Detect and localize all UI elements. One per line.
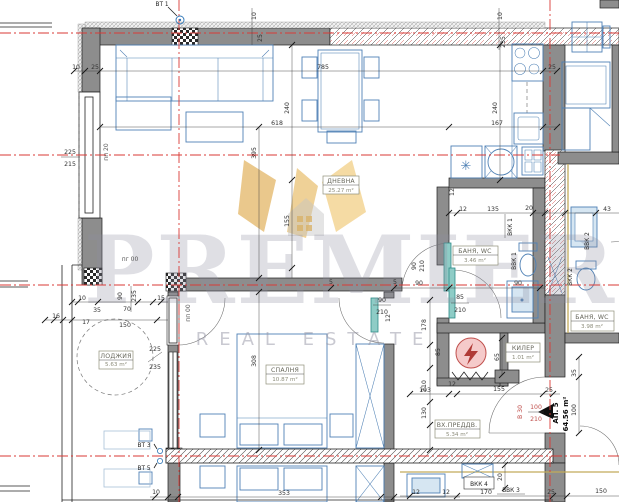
riser-label: ВВК 1 [512, 252, 518, 270]
vt3-arrow-icon [142, 431, 148, 438]
dim: 35 [571, 369, 578, 377]
lower-nightstand [200, 466, 225, 488]
nightstand-left [200, 414, 225, 437]
dim: 70 [123, 306, 131, 313]
riser-label: ВКК 1 [508, 218, 514, 236]
room-label-bedroom: СПАЛНЯ 10.87 m² [266, 365, 304, 384]
dim: 12 [449, 188, 456, 196]
neighbor-balcony-bottom-left [0, 486, 30, 491]
vt-leader-circle-2 [157, 458, 162, 463]
dining-chair-1 [302, 57, 317, 78]
room-area: 25.27 m² [328, 187, 353, 194]
dim: 210 [421, 380, 428, 392]
floor-plan-screenshot: ✳ [0, 0, 619, 502]
entrance-mark: В 30 [517, 405, 524, 419]
dim: 155 [493, 386, 505, 393]
neighbor-table-cross [572, 22, 602, 52]
room-name: КИЛЕР [512, 345, 534, 352]
wall-neighbor-right [612, 45, 619, 152]
level-mark: пг 00 [122, 256, 139, 263]
snowflake-icon: ✳ [461, 159, 472, 174]
burner-2 [529, 48, 540, 59]
wall-lower-left [168, 463, 180, 502]
room-name: СПАЛНЯ [271, 367, 299, 374]
dim: 155 [284, 215, 291, 227]
burner-1 [515, 48, 525, 58]
room-label-living: ДНЕВНА 25.27 m² [323, 176, 359, 194]
wall-neighbor-bath-bottom [565, 333, 619, 343]
door-size: 210 [419, 260, 426, 272]
dim: 130 [421, 407, 428, 419]
dim: 90 [415, 280, 423, 287]
dim: 10 [251, 12, 258, 20]
dim: 35 [93, 307, 101, 314]
room-name: БАНЯ, WC [458, 248, 491, 255]
dim: 235 [500, 36, 507, 48]
dim: 25 [257, 34, 264, 42]
dim: 90 [117, 292, 124, 300]
dim: 353 [278, 490, 290, 497]
dining-chair-4 [364, 100, 379, 121]
dim: 10 [152, 489, 160, 496]
burner-4 [529, 64, 539, 74]
wardrobe-cross [356, 344, 384, 448]
dim: 65 [494, 353, 501, 361]
vt5-arrow-icon [142, 474, 148, 481]
column-top [172, 28, 198, 45]
wall-neighbor-mid [558, 152, 619, 164]
dim: 25 [545, 387, 553, 394]
vt1-symbol-dot [179, 19, 181, 21]
dim: 178 [421, 319, 428, 331]
riser-label: ВВК 3 [502, 488, 520, 494]
dim: 170 [480, 489, 492, 496]
wall-lower-mid [384, 463, 394, 502]
room-area: 10.87 m² [272, 376, 297, 383]
dim: 25 [91, 64, 99, 71]
room-area: 5.34 m² [446, 431, 468, 438]
dim: 85 [435, 348, 442, 356]
neighbor-sofa [562, 62, 610, 108]
riser-label: ВКК 4 [470, 482, 488, 488]
dim: 215 [64, 161, 76, 168]
dim: 12 [385, 314, 392, 322]
pillow-2 [284, 424, 322, 445]
room-label-storage: КИЛЕР 1.01 m² [506, 343, 540, 362]
dining-chair-5 [327, 131, 356, 143]
dim: 12 [442, 489, 450, 496]
neighbor-sofa-l [562, 108, 590, 150]
wall-bedroom-hall [384, 344, 394, 454]
dim: 20 [525, 205, 533, 212]
lower-pillow-2 [284, 468, 322, 490]
dishwasher-grid [525, 150, 541, 172]
dim: 16 [52, 313, 60, 320]
lower-pillow-1 [240, 468, 278, 490]
wall-top-right-hatched [330, 28, 619, 45]
dim: 167 [491, 120, 503, 127]
vt-leader-circle-1 [157, 448, 162, 453]
floor-plan-drawing: ✳ [0, 0, 619, 502]
wall-neighbor-top [600, 0, 619, 8]
dim: 785 [317, 64, 329, 71]
dim: 395 [251, 147, 258, 159]
burner-3 [515, 64, 526, 75]
wall-entry-stub [495, 370, 519, 383]
dim: 240 [492, 102, 499, 114]
dim: 618 [271, 120, 283, 127]
dim: 100 [571, 404, 578, 416]
lower-washer-cross [462, 464, 493, 478]
neighbor-balcony-top-left [0, 23, 52, 27]
room-name: ЛОДЖИЯ [100, 353, 131, 360]
door-size: 90 [378, 297, 386, 304]
dining-chair-2 [364, 57, 379, 78]
living-room-furniture [116, 45, 379, 143]
dim: 235 [131, 290, 138, 302]
dim: 12 [448, 381, 456, 388]
entrance-width: 100 [530, 404, 542, 411]
watermark-brand: PREMIER [84, 216, 616, 326]
door-size: 210 [454, 307, 466, 314]
room-label-bath-adjacent: БАНЯ, WC 3.98 m² [571, 311, 614, 331]
room-label-bath: БАНЯ, WC 3.46 m² [453, 246, 498, 265]
lower-wardrobe-cross [356, 466, 384, 502]
room-name: ДНЕВНА [327, 178, 355, 185]
kitchen-sink-basin [518, 117, 539, 140]
lower-apartment [104, 431, 493, 502]
wall-top-left [85, 28, 330, 45]
dim: 135 [487, 206, 499, 213]
neighbor-balcony-mid-left [0, 281, 28, 287]
dim: 12 [459, 206, 467, 213]
dim: 12 [412, 489, 420, 496]
dim: 5 [329, 279, 333, 286]
apartment-number: АП. 5 [552, 402, 560, 423]
dim: 20 [497, 473, 504, 481]
neighbor-sofa-fold [590, 108, 610, 126]
dining-chair-3 [302, 100, 317, 121]
vent-label: ВТ 5 [137, 466, 150, 472]
dim: 240 [284, 102, 291, 114]
sofa-chaise [116, 97, 171, 130]
room-area: 5.63 m² [105, 361, 127, 368]
dim: 5 [393, 279, 397, 286]
riser-label: ВВК 2 [585, 232, 591, 250]
bed [237, 334, 327, 448]
sofa-cushions [116, 50, 273, 101]
room-label-loggia: ЛОДЖИЯ 5.63 m² [99, 351, 133, 369]
facade-insulation-top [85, 22, 545, 28]
dim: 225 [149, 346, 161, 353]
dim: 25 [547, 489, 555, 496]
dim: 90 [514, 280, 522, 287]
vt1-leader [168, 7, 177, 16]
room-name: ВХ.ПРЕДДВ. [437, 422, 478, 429]
loggia-area [77, 319, 163, 484]
watermark-tagline: REAL ESTATE [196, 329, 435, 350]
bedroom-furniture [200, 334, 384, 448]
room-area: 3.46 m² [464, 257, 486, 264]
door-size: 85 [456, 294, 464, 301]
dim: 225 [64, 149, 76, 156]
room-area: 3.98 m² [581, 323, 603, 330]
wall-left-upper [82, 28, 100, 92]
vent-label: ВТ 1 [155, 2, 168, 8]
door-arc-neighbor-entry [580, 426, 619, 465]
sofa-body [116, 45, 273, 101]
room-label-hall: ВХ.ПРЕДДВ. 5.34 m² [435, 420, 480, 438]
dining-table [318, 50, 362, 132]
level-mark: пп 00 [185, 304, 192, 322]
vent-label: ВТ 3 [137, 443, 150, 449]
level-mark: пп 20 [103, 143, 110, 161]
door-size: 90 [411, 262, 418, 270]
riser-label: ВКК 2 [568, 268, 574, 286]
entrance-height: 210 [530, 416, 542, 423]
dim: 17 [82, 319, 90, 326]
apartment-area: 64.56 m² [562, 397, 570, 432]
dim: 10 [78, 295, 86, 302]
dim: 15 [157, 295, 165, 302]
neighbor-sofa-inner [566, 66, 606, 104]
room-name: БАНЯ, WC [575, 314, 608, 321]
dim: 235 [149, 364, 161, 371]
dim: 10 [72, 64, 80, 71]
corner-basin [488, 149, 514, 175]
dim: 43 [603, 206, 611, 213]
dim: 150 [595, 488, 607, 495]
dim: 308 [251, 355, 258, 367]
dim: 25 [548, 64, 556, 71]
dim: 150 [119, 322, 131, 329]
room-area: 1.01 m² [512, 354, 534, 361]
dim: 10 [497, 12, 504, 20]
nightstand-right [330, 414, 353, 437]
